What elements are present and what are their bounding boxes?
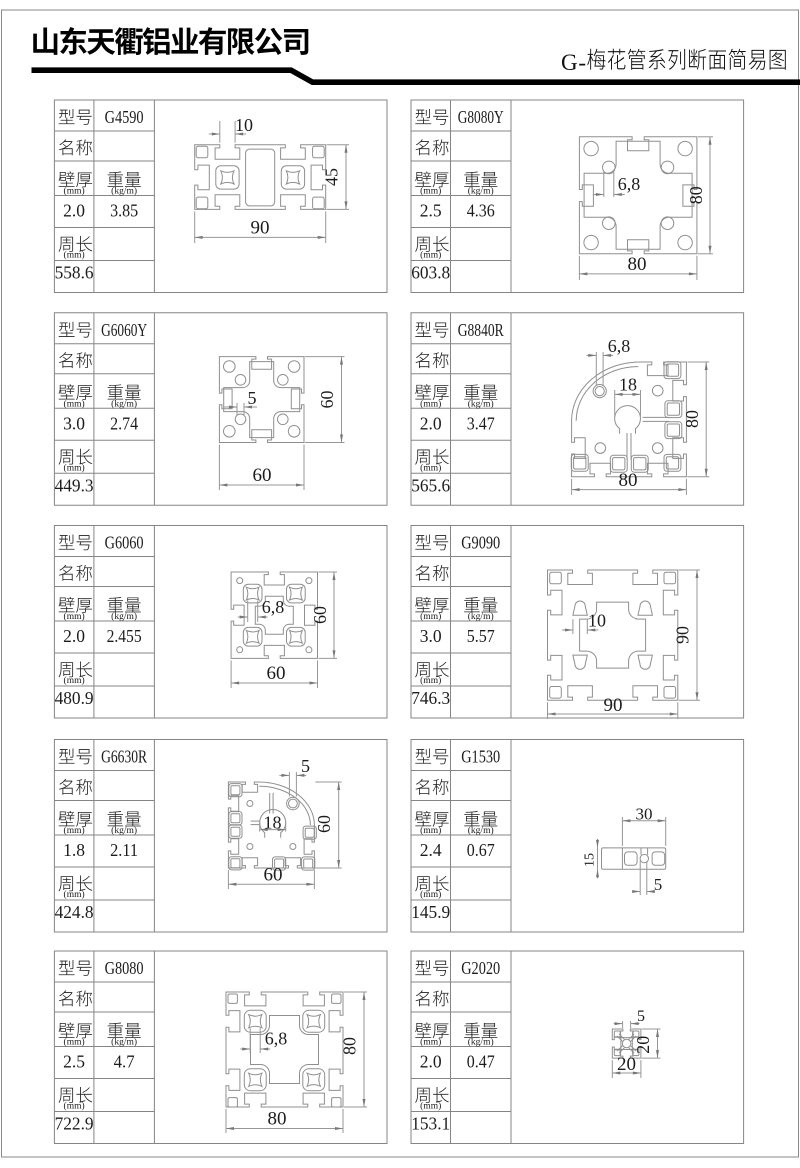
svg-text:2.0: 2.0 — [420, 413, 442, 433]
svg-text:746.3: 746.3 — [411, 688, 450, 708]
svg-text:(mm): (mm) — [64, 398, 85, 409]
svg-text:80: 80 — [682, 410, 702, 428]
svg-text:G-: G- — [561, 50, 586, 75]
svg-text:558.6: 558.6 — [55, 263, 94, 283]
svg-text:449.3: 449.3 — [55, 475, 94, 495]
svg-text:20: 20 — [617, 1054, 636, 1075]
svg-text:45: 45 — [322, 168, 342, 186]
svg-text:10: 10 — [235, 115, 253, 135]
svg-text:2.11: 2.11 — [110, 840, 138, 860]
svg-text:(kg/m): (kg/m) — [111, 611, 137, 622]
svg-text:4.36: 4.36 — [467, 201, 495, 221]
svg-text:G2020: G2020 — [461, 958, 500, 978]
svg-text:G6630R: G6630R — [101, 747, 147, 767]
svg-text:(mm): (mm) — [64, 825, 85, 836]
svg-text:3.0: 3.0 — [420, 626, 442, 646]
svg-text:18: 18 — [619, 375, 637, 395]
svg-text:80: 80 — [268, 1109, 287, 1130]
svg-text:(mm): (mm) — [64, 611, 85, 622]
svg-text:2.4: 2.4 — [420, 840, 442, 860]
svg-text:424.8: 424.8 — [55, 902, 94, 922]
svg-text:(mm): (mm) — [64, 186, 85, 197]
svg-text:(mm): (mm) — [64, 889, 85, 900]
svg-text:(mm): (mm) — [64, 462, 85, 473]
svg-text:5: 5 — [248, 388, 257, 408]
svg-text:(mm): (mm) — [420, 462, 441, 473]
svg-text:2.5: 2.5 — [420, 201, 442, 221]
svg-text:80: 80 — [686, 186, 706, 204]
svg-text:(mm): (mm) — [420, 825, 441, 836]
svg-text:6,8: 6,8 — [618, 174, 641, 194]
svg-text:(mm): (mm) — [64, 675, 85, 686]
svg-text:6,8: 6,8 — [608, 336, 631, 356]
svg-text:5: 5 — [301, 756, 310, 776]
svg-text:G1530: G1530 — [461, 747, 500, 767]
svg-text:G4590: G4590 — [105, 107, 144, 127]
svg-text:(kg/m): (kg/m) — [468, 611, 494, 622]
svg-text:(kg/m): (kg/m) — [111, 1037, 137, 1048]
svg-text:3.0: 3.0 — [63, 413, 85, 433]
svg-text:G6060: G6060 — [105, 533, 144, 553]
svg-text:80: 80 — [628, 254, 647, 275]
svg-text:(mm): (mm) — [64, 1101, 85, 1112]
svg-text:6,8: 6,8 — [265, 1029, 288, 1049]
svg-text:60: 60 — [310, 606, 330, 624]
svg-text:80: 80 — [619, 470, 638, 491]
svg-text:30: 30 — [636, 805, 653, 824]
svg-text:90: 90 — [604, 695, 623, 716]
svg-text:90: 90 — [251, 218, 270, 239]
svg-text:(mm): (mm) — [420, 675, 441, 686]
svg-text:(kg/m): (kg/m) — [111, 398, 137, 409]
svg-text:60: 60 — [317, 391, 337, 409]
svg-text:60: 60 — [264, 865, 283, 886]
svg-text:6,8: 6,8 — [262, 597, 285, 617]
svg-text:G6060Y: G6060Y — [101, 320, 147, 340]
svg-text:(mm): (mm) — [420, 611, 441, 622]
svg-text:0.67: 0.67 — [467, 840, 495, 860]
svg-text:15: 15 — [583, 853, 598, 867]
svg-text:3.47: 3.47 — [467, 413, 495, 433]
svg-text:18: 18 — [264, 813, 282, 833]
svg-text:90: 90 — [673, 626, 693, 644]
svg-text:0.47: 0.47 — [467, 1052, 495, 1072]
svg-text:(kg/m): (kg/m) — [468, 825, 494, 836]
svg-text:(kg/m): (kg/m) — [468, 1037, 494, 1048]
svg-text:G8080Y: G8080Y — [458, 107, 504, 127]
svg-text:2.0: 2.0 — [63, 201, 85, 221]
svg-text:480.9: 480.9 — [55, 688, 94, 708]
svg-text:(kg/m): (kg/m) — [111, 825, 137, 836]
svg-text:565.6: 565.6 — [411, 475, 450, 495]
svg-text:20: 20 — [633, 1036, 653, 1054]
svg-text:1.8: 1.8 — [63, 840, 85, 860]
svg-text:10: 10 — [588, 611, 606, 631]
svg-text:5: 5 — [654, 875, 663, 894]
svg-text:(mm): (mm) — [64, 250, 85, 261]
svg-text:60: 60 — [253, 465, 272, 486]
svg-text:(mm): (mm) — [420, 186, 441, 197]
svg-text:(mm): (mm) — [420, 889, 441, 900]
svg-text:(kg/m): (kg/m) — [468, 186, 494, 197]
svg-text:5.57: 5.57 — [467, 626, 495, 646]
svg-text:(kg/m): (kg/m) — [111, 186, 137, 197]
svg-text:80: 80 — [340, 1037, 360, 1055]
svg-text:G8840R: G8840R — [458, 320, 504, 340]
svg-text:722.9: 722.9 — [55, 1114, 94, 1134]
svg-text:2.5: 2.5 — [63, 1052, 85, 1072]
svg-text:153.1: 153.1 — [411, 1114, 450, 1134]
svg-text:603.8: 603.8 — [411, 263, 450, 283]
svg-text:G9090: G9090 — [461, 533, 500, 553]
svg-text:(mm): (mm) — [420, 398, 441, 409]
svg-text:5: 5 — [637, 1008, 645, 1025]
svg-text:4.7: 4.7 — [114, 1052, 135, 1072]
svg-text:145.9: 145.9 — [411, 902, 450, 922]
svg-text:G8080: G8080 — [105, 958, 144, 978]
svg-text:(mm): (mm) — [64, 1037, 85, 1048]
svg-text:(mm): (mm) — [420, 1037, 441, 1048]
svg-text:2.0: 2.0 — [420, 1052, 442, 1072]
svg-text:60: 60 — [267, 663, 286, 684]
svg-text:(mm): (mm) — [420, 1101, 441, 1112]
svg-text:2.74: 2.74 — [110, 413, 138, 433]
svg-text:60: 60 — [314, 815, 334, 833]
svg-text:2.455: 2.455 — [107, 626, 142, 646]
svg-text:(kg/m): (kg/m) — [468, 398, 494, 409]
svg-text:3.85: 3.85 — [110, 201, 138, 221]
svg-text:(mm): (mm) — [420, 250, 441, 261]
svg-text:2.0: 2.0 — [63, 626, 85, 646]
